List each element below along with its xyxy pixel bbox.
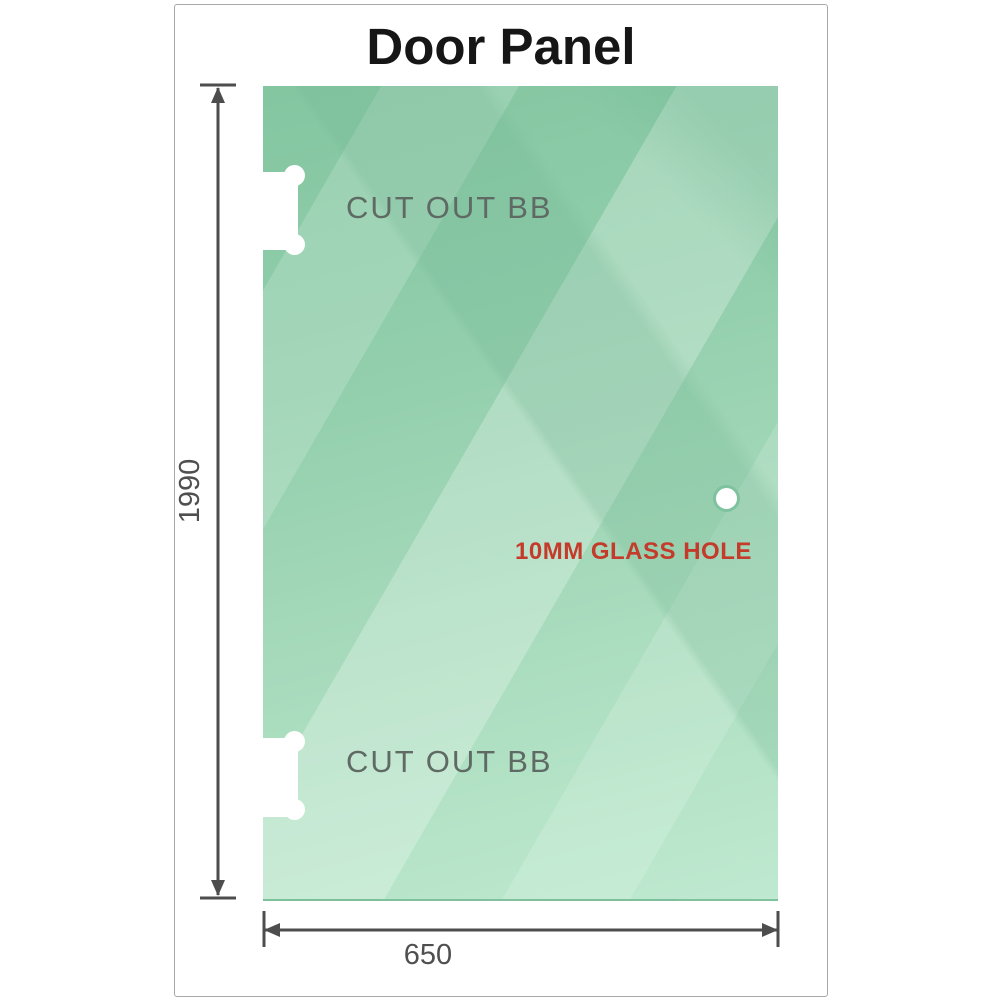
dimension-lines	[175, 5, 827, 996]
height-dim-arrow-down	[211, 880, 225, 896]
height-dimension-label: 1990	[175, 450, 205, 532]
height-dim-arrow-up	[211, 87, 225, 103]
width-dim-arrow-left	[264, 923, 280, 937]
width-dim-arrow-right	[762, 923, 778, 937]
diagram-frame: Door Panel CUT OUT BB CUT OUT BB 10MM GL…	[174, 4, 828, 997]
width-dimension-label: 650	[388, 939, 468, 972]
